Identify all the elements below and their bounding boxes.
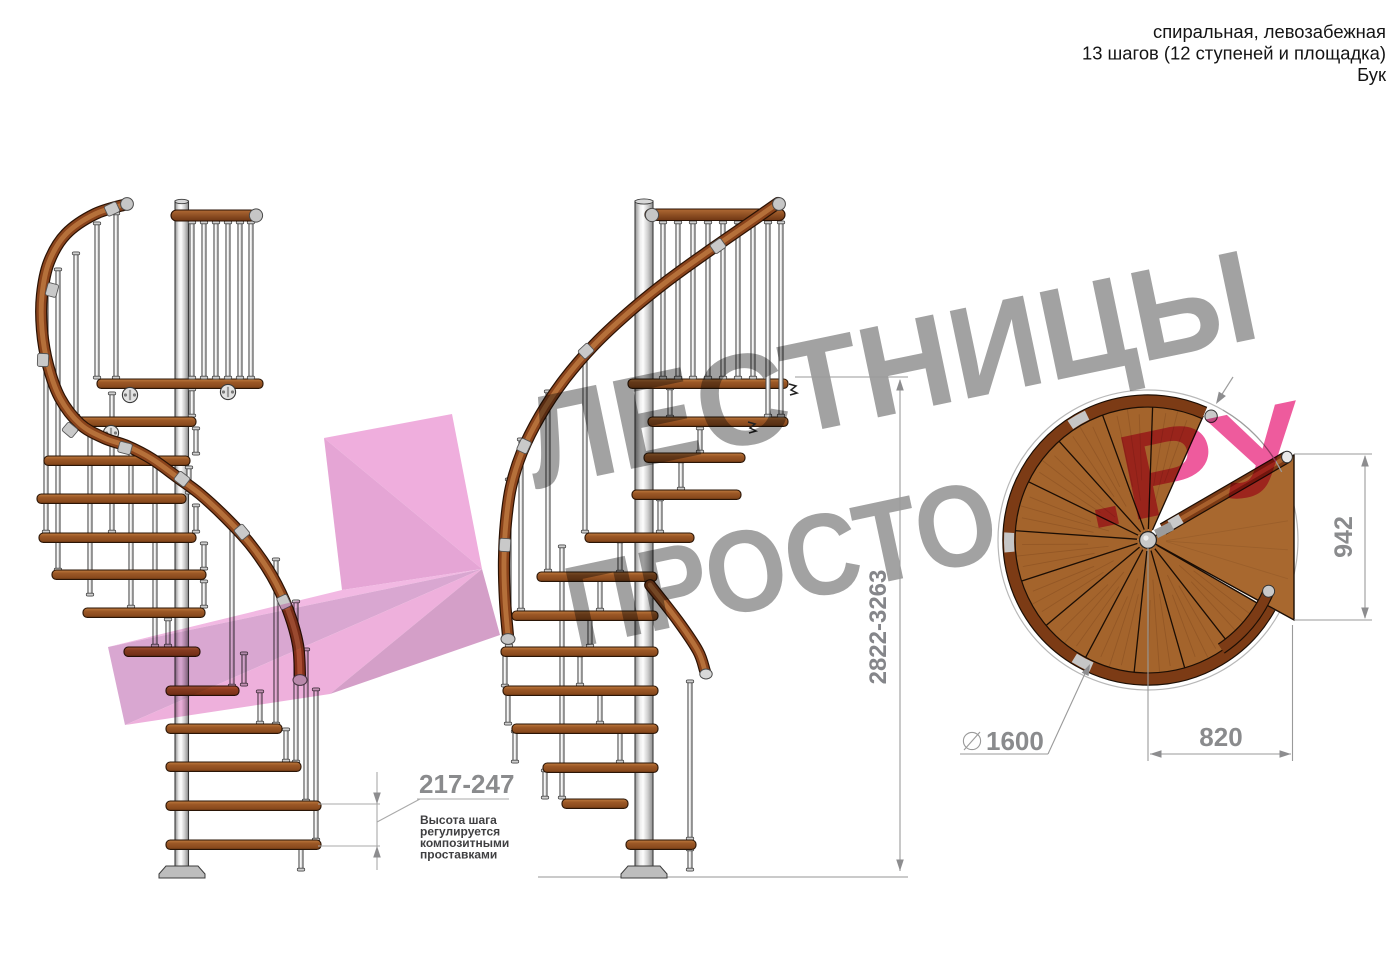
svg-text:820: 820 xyxy=(1199,722,1242,752)
svg-text:942: 942 xyxy=(1330,516,1358,558)
svg-text:217-247: 217-247 xyxy=(419,769,514,799)
svg-text:Высота шагарегулируетсякомпози: Высота шагарегулируетсякомпозитнымипрост… xyxy=(420,813,509,862)
svg-text:1600: 1600 xyxy=(986,726,1044,756)
svg-text:2822-3263: 2822-3263 xyxy=(865,570,892,685)
